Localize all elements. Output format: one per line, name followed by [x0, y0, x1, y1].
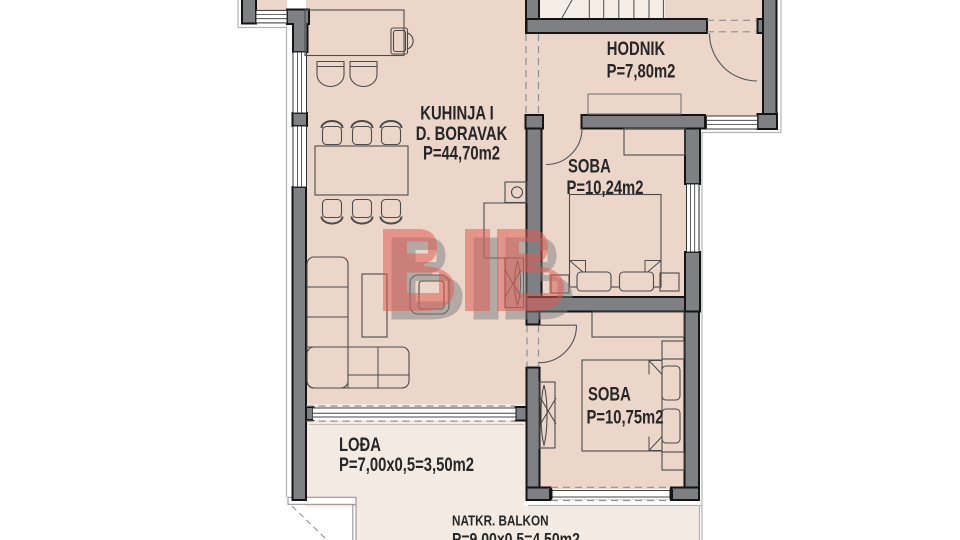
svg-text:KUHINJA I: KUHINJA I [420, 103, 493, 124]
svg-text:D. BORAVAK: D. BORAVAK [416, 123, 508, 144]
svg-text:SOBA: SOBA [568, 156, 611, 177]
svg-text:P=7,80m2: P=7,80m2 [607, 61, 676, 82]
svg-text:P=10,75m2: P=10,75m2 [587, 407, 664, 428]
svg-text:P=9,00x0,5=4,50m2: P=9,00x0,5=4,50m2 [452, 529, 580, 540]
svg-text:P=7,00x0,5=3,50m2: P=7,00x0,5=3,50m2 [339, 454, 474, 475]
svg-text:SOBA: SOBA [588, 384, 631, 405]
svg-text:HODNIK: HODNIK [607, 38, 666, 59]
svg-text:NATKR. BALKON: NATKR. BALKON [452, 512, 549, 529]
svg-text:P=10,24m2: P=10,24m2 [567, 177, 644, 198]
svg-text:LOĐA: LOĐA [339, 434, 381, 455]
svg-text:P=44,70m2: P=44,70m2 [423, 143, 500, 164]
